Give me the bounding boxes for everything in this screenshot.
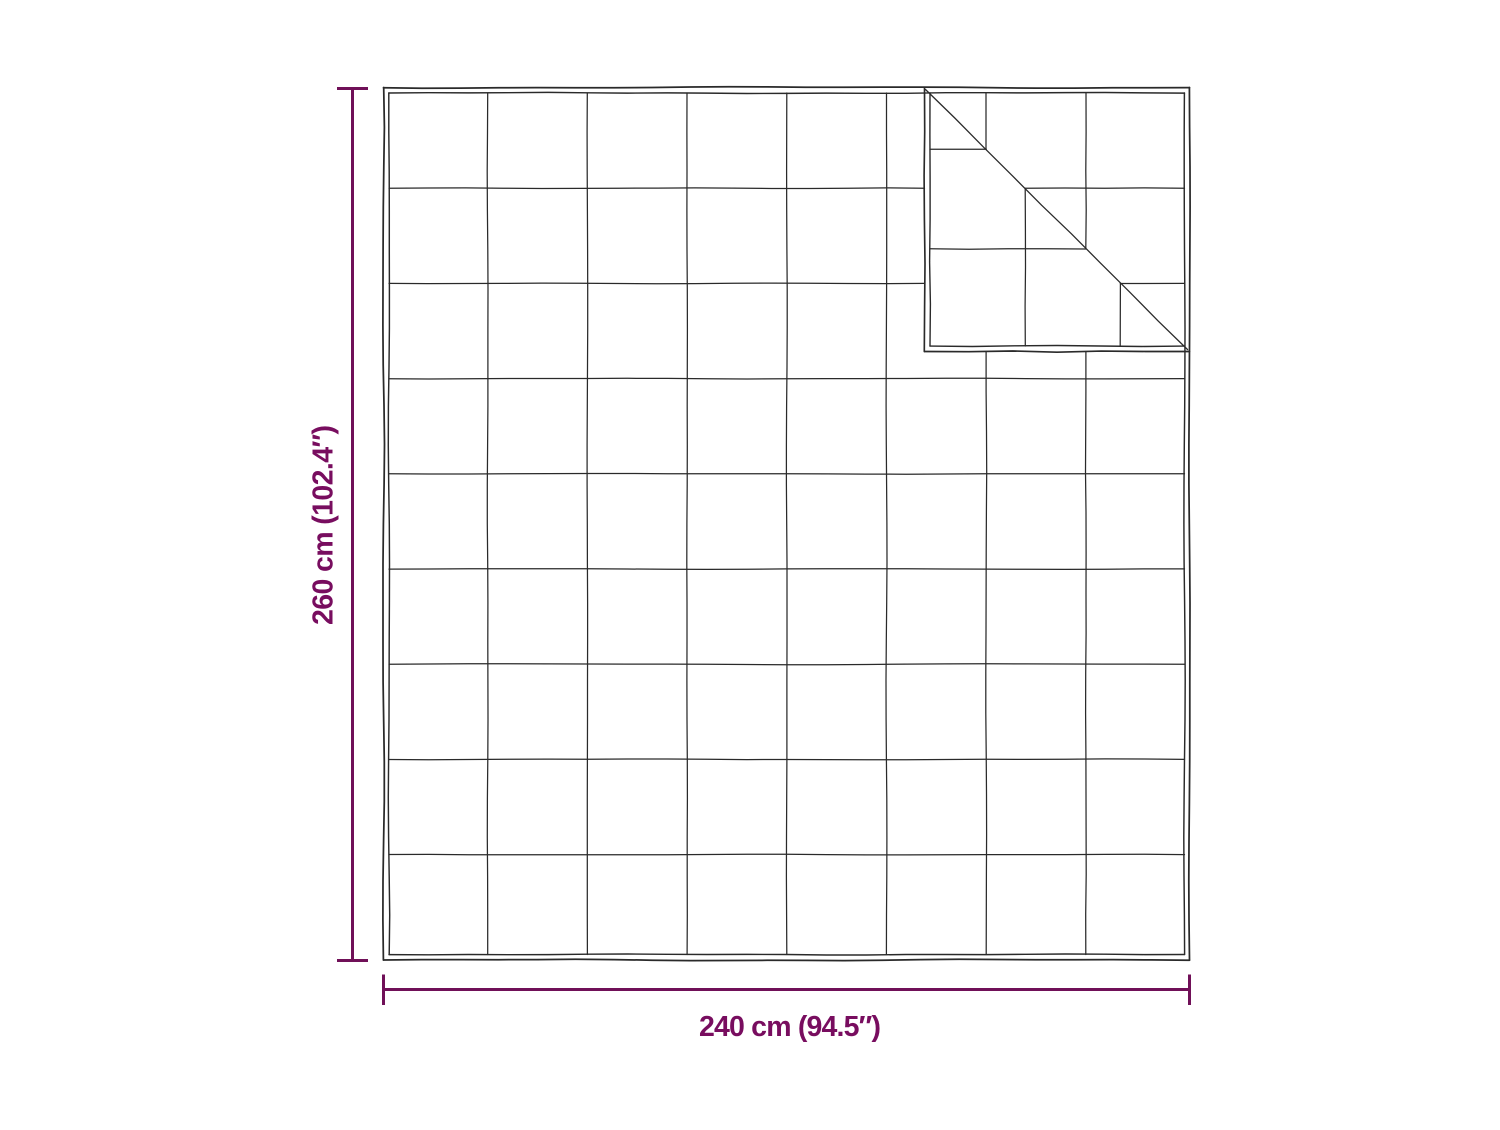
svg-text:240 cm (94.5″): 240 cm (94.5″): [699, 1011, 881, 1043]
svg-text:260 cm (102.4″): 260 cm (102.4″): [308, 425, 340, 625]
